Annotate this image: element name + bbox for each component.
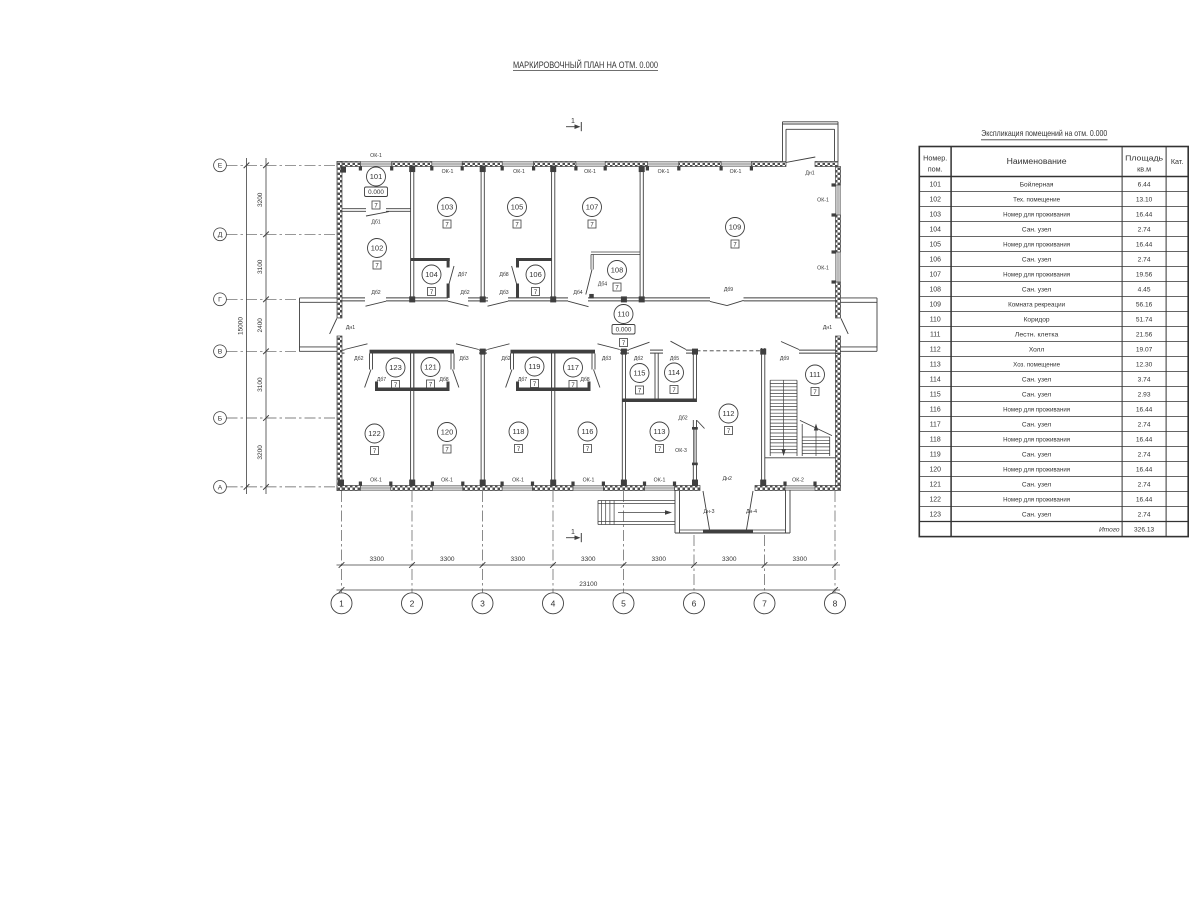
svg-text:2.74: 2.74 <box>1138 226 1151 233</box>
svg-text:ОК-1: ОК-1 <box>817 266 829 272</box>
svg-text:122: 122 <box>929 496 941 503</box>
svg-text:Дб9: Дб9 <box>780 356 789 362</box>
svg-text:Дб7: Дб7 <box>377 377 386 383</box>
svg-text:105: 105 <box>511 203 524 212</box>
svg-text:116: 116 <box>582 427 594 436</box>
svg-text:3100: 3100 <box>257 259 264 274</box>
svg-text:19.56: 19.56 <box>1136 271 1153 278</box>
svg-text:ОК-1: ОК-1 <box>370 477 382 483</box>
svg-text:2.93: 2.93 <box>1138 391 1151 398</box>
svg-text:Площадь: Площадь <box>1125 154 1163 163</box>
svg-text:Г: Г <box>218 297 222 304</box>
svg-text:103: 103 <box>929 211 941 218</box>
svg-text:101: 101 <box>929 181 941 188</box>
svg-text:Дб7: Дб7 <box>518 377 527 383</box>
svg-text:Бойлерная: Бойлерная <box>1020 180 1054 188</box>
svg-text:108: 108 <box>929 286 941 293</box>
svg-text:111: 111 <box>930 331 941 338</box>
svg-text:Сан. узел: Сан. узел <box>1022 451 1052 458</box>
svg-text:112: 112 <box>723 409 735 418</box>
svg-text:1: 1 <box>571 529 575 536</box>
svg-text:ОК-2: ОК-2 <box>792 477 804 483</box>
svg-text:23100: 23100 <box>579 581 597 588</box>
svg-text:122: 122 <box>368 429 381 438</box>
svg-text:19.07: 19.07 <box>1136 346 1153 353</box>
svg-text:Дб7: Дб7 <box>458 272 467 278</box>
svg-text:Дн-4: Дн-4 <box>746 509 757 515</box>
svg-text:ОК-1: ОК-1 <box>512 477 524 483</box>
svg-text:ОК-3: ОК-3 <box>675 448 687 454</box>
svg-text:4: 4 <box>551 598 556 608</box>
svg-text:101: 101 <box>370 172 383 181</box>
svg-text:7: 7 <box>762 598 767 608</box>
svg-text:113: 113 <box>654 427 666 436</box>
svg-text:Е: Е <box>218 163 223 170</box>
svg-text:Сан. узел: Сан. узел <box>1022 286 1052 293</box>
svg-text:Номер для проживания: Номер для проживания <box>1003 271 1070 278</box>
svg-text:Д: Д <box>218 232 223 239</box>
svg-text:Дб2: Дб2 <box>634 356 643 362</box>
svg-text:6: 6 <box>692 598 697 608</box>
svg-text:Лестн. клетка: Лестн. клетка <box>1015 331 1059 338</box>
svg-text:112: 112 <box>930 346 941 353</box>
svg-text:3300: 3300 <box>793 556 808 563</box>
svg-text:ОК-1: ОК-1 <box>370 153 382 159</box>
svg-text:Сан. узел: Сан. узел <box>1022 391 1052 398</box>
svg-text:113: 113 <box>930 361 941 368</box>
svg-text:Дб1: Дб1 <box>371 220 380 226</box>
svg-text:16.44: 16.44 <box>1136 466 1153 473</box>
svg-text:119: 119 <box>930 451 941 458</box>
svg-text:117: 117 <box>567 363 579 372</box>
svg-text:Дб3: Дб3 <box>459 356 468 362</box>
svg-text:Сан. узел: Сан. узел <box>1022 226 1052 233</box>
svg-text:Б: Б <box>218 415 223 422</box>
svg-text:107: 107 <box>929 271 941 278</box>
svg-text:Номер для проживания: Номер для проживания <box>1003 211 1070 218</box>
svg-text:4.45: 4.45 <box>1138 286 1151 293</box>
svg-text:21.56: 21.56 <box>1136 331 1153 338</box>
svg-text:114: 114 <box>930 376 941 383</box>
svg-text:1: 1 <box>571 118 575 125</box>
svg-text:123: 123 <box>929 511 941 518</box>
svg-text:109: 109 <box>729 223 742 232</box>
svg-text:Дб8: Дб8 <box>580 377 589 383</box>
svg-text:Дб4: Дб4 <box>598 281 607 287</box>
svg-text:Сан. узел: Сан. узел <box>1022 481 1052 488</box>
svg-text:Номер для проживания: Номер для проживания <box>1003 406 1070 413</box>
svg-text:120: 120 <box>929 466 941 473</box>
svg-text:кв.м: кв.м <box>1137 165 1151 174</box>
svg-text:2.74: 2.74 <box>1138 511 1151 518</box>
svg-text:Дб3: Дб3 <box>499 290 508 296</box>
svg-text:104: 104 <box>425 270 438 279</box>
svg-text:ОК-1: ОК-1 <box>658 169 670 175</box>
svg-text:Дб3: Дб3 <box>602 356 611 362</box>
svg-text:1: 1 <box>339 598 344 608</box>
svg-text:Дн1: Дн1 <box>346 325 355 331</box>
svg-text:Дб8: Дб8 <box>499 272 508 278</box>
svg-text:115: 115 <box>930 391 941 398</box>
svg-text:Дб2: Дб2 <box>371 290 380 296</box>
svg-text:пом.: пом. <box>928 165 943 174</box>
svg-text:Дб9: Дб9 <box>724 287 733 293</box>
svg-text:Дб8: Дб8 <box>439 377 448 383</box>
svg-text:117: 117 <box>930 421 941 428</box>
svg-text:Хоз. помещение: Хоз. помещение <box>1013 361 1060 368</box>
svg-text:115: 115 <box>634 369 646 378</box>
svg-text:16.44: 16.44 <box>1136 406 1153 413</box>
svg-text:3300: 3300 <box>581 556 596 563</box>
svg-text:111: 111 <box>809 370 820 379</box>
svg-text:ОК-1: ОК-1 <box>584 169 596 175</box>
svg-text:Экспликация помещений на отм.: Экспликация помещений на отм. 0.000 <box>981 128 1107 138</box>
svg-text:А: А <box>218 484 223 491</box>
svg-text:123: 123 <box>389 363 402 372</box>
svg-text:3300: 3300 <box>440 556 455 563</box>
svg-text:МАРКИРОВОЧНЫЙ ПЛАН НА ОТМ. 0.0: МАРКИРОВОЧНЫЙ ПЛАН НА ОТМ. 0.000 <box>513 59 658 70</box>
svg-text:Номер.: Номер. <box>923 154 947 163</box>
svg-text:3.74: 3.74 <box>1138 376 1151 383</box>
svg-text:ОК-1: ОК-1 <box>817 198 829 204</box>
svg-text:ОК-1: ОК-1 <box>730 169 742 175</box>
svg-text:8: 8 <box>833 598 838 608</box>
svg-text:108: 108 <box>611 266 624 275</box>
svg-text:Дн1: Дн1 <box>805 170 814 176</box>
svg-text:Холл: Холл <box>1029 346 1045 353</box>
svg-text:56.16: 56.16 <box>1136 301 1153 308</box>
svg-text:Сан. узел: Сан. узел <box>1022 421 1052 428</box>
svg-text:3200: 3200 <box>257 192 264 207</box>
svg-text:ОК-1: ОК-1 <box>583 477 595 483</box>
svg-text:Коридор: Коридор <box>1024 316 1050 323</box>
svg-text:2400: 2400 <box>257 318 264 333</box>
svg-text:3300: 3300 <box>370 556 385 563</box>
svg-text:2.74: 2.74 <box>1138 451 1151 458</box>
svg-text:2.74: 2.74 <box>1138 256 1151 263</box>
svg-text:119: 119 <box>529 362 541 371</box>
svg-text:2.74: 2.74 <box>1138 421 1151 428</box>
svg-text:103: 103 <box>441 203 454 212</box>
svg-text:Дб2: Дб2 <box>678 416 687 422</box>
svg-text:110: 110 <box>930 316 941 323</box>
svg-text:120: 120 <box>441 428 454 437</box>
svg-text:16.44: 16.44 <box>1136 496 1153 503</box>
svg-text:3300: 3300 <box>511 556 526 563</box>
svg-text:Дб2: Дб2 <box>460 290 469 296</box>
svg-text:107: 107 <box>586 203 599 212</box>
svg-text:13.10: 13.10 <box>1136 196 1153 203</box>
svg-text:ОК-1: ОК-1 <box>441 477 453 483</box>
svg-text:Номер для проживания: Номер для проживания <box>1003 436 1070 443</box>
svg-text:Сан. узел: Сан. узел <box>1022 511 1052 518</box>
svg-text:326.13: 326.13 <box>1134 527 1155 534</box>
svg-text:106: 106 <box>929 256 941 263</box>
svg-text:16.44: 16.44 <box>1136 436 1153 443</box>
svg-text:Кат.: Кат. <box>1171 157 1184 166</box>
svg-text:Сан. узел: Сан. узел <box>1022 256 1052 263</box>
svg-text:121: 121 <box>929 481 941 488</box>
svg-text:118: 118 <box>513 427 525 436</box>
svg-text:Сан. узел: Сан. узел <box>1022 376 1052 383</box>
svg-text:51.74: 51.74 <box>1136 316 1153 323</box>
svg-text:2: 2 <box>410 598 415 608</box>
svg-text:102: 102 <box>929 196 941 203</box>
svg-text:16.44: 16.44 <box>1136 211 1153 218</box>
svg-text:106: 106 <box>529 270 542 279</box>
svg-text:ОК-1: ОК-1 <box>654 477 666 483</box>
svg-text:121: 121 <box>424 363 437 372</box>
svg-text:Дб2: Дб2 <box>354 356 363 362</box>
svg-text:114: 114 <box>668 368 680 377</box>
svg-text:Итого: Итого <box>1099 527 1120 534</box>
svg-text:110: 110 <box>618 310 630 319</box>
svg-text:Дн-3: Дн-3 <box>704 509 715 515</box>
svg-text:ОК-1: ОК-1 <box>442 169 454 175</box>
svg-text:12.30: 12.30 <box>1136 361 1153 368</box>
svg-text:16.44: 16.44 <box>1136 241 1153 248</box>
svg-text:102: 102 <box>371 244 384 253</box>
svg-text:118: 118 <box>930 436 941 443</box>
svg-text:104: 104 <box>929 226 941 233</box>
svg-text:15000: 15000 <box>238 317 245 335</box>
svg-text:Дн1: Дн1 <box>823 325 832 331</box>
svg-text:Дб5: Дб5 <box>670 356 679 362</box>
svg-text:3100: 3100 <box>257 377 264 392</box>
svg-text:Дн2: Дн2 <box>723 476 732 482</box>
svg-text:0.000: 0.000 <box>616 327 632 334</box>
svg-text:109: 109 <box>929 301 941 308</box>
svg-text:3: 3 <box>480 598 485 608</box>
svg-text:5: 5 <box>621 598 626 608</box>
svg-text:Комната рекреации: Комната рекреации <box>1008 301 1065 308</box>
svg-text:Номер для проживания: Номер для проживания <box>1003 466 1070 473</box>
svg-text:2.74: 2.74 <box>1138 481 1151 488</box>
svg-text:Дб4: Дб4 <box>573 290 582 296</box>
svg-text:6.44: 6.44 <box>1138 181 1151 188</box>
svg-text:Тех. помещение: Тех. помещение <box>1013 196 1060 203</box>
svg-text:116: 116 <box>930 406 941 413</box>
svg-text:105: 105 <box>929 241 941 248</box>
svg-text:3300: 3300 <box>722 556 737 563</box>
svg-text:3200: 3200 <box>257 445 264 460</box>
svg-text:В: В <box>218 349 223 356</box>
svg-text:3300: 3300 <box>652 556 667 563</box>
svg-text:Номер для проживания: Номер для проживания <box>1003 241 1070 248</box>
svg-text:Наименование: Наименование <box>1007 157 1067 166</box>
svg-text:0.000: 0.000 <box>368 189 384 196</box>
svg-text:Дб2: Дб2 <box>501 356 510 362</box>
svg-text:Номер для проживания: Номер для проживания <box>1003 496 1070 503</box>
svg-text:ОК-1: ОК-1 <box>513 169 525 175</box>
